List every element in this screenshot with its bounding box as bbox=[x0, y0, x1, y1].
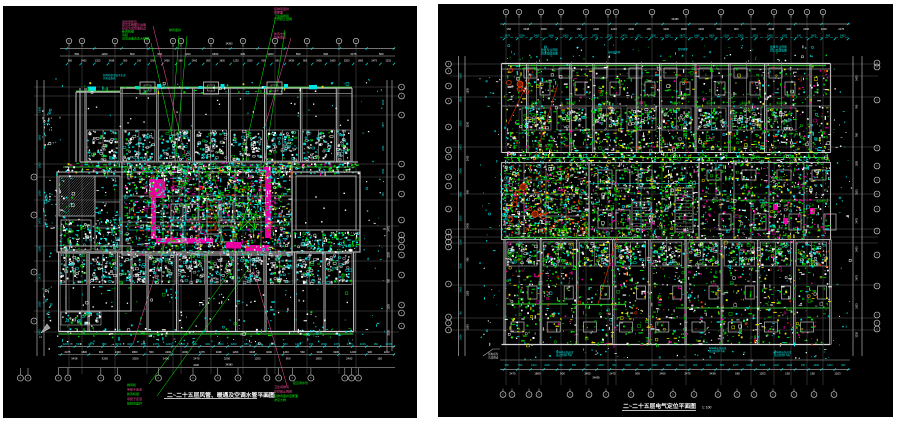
svg-text:900: 900 bbox=[286, 357, 291, 361]
svg-text:1: 100: 1: 100 bbox=[702, 406, 712, 410]
svg-text:560: 560 bbox=[296, 52, 301, 56]
svg-text:2400: 2400 bbox=[659, 372, 666, 376]
svg-text:2400: 2400 bbox=[459, 334, 463, 340]
svg-text:150: 150 bbox=[102, 342, 107, 346]
svg-text:2475: 2475 bbox=[193, 357, 200, 361]
svg-text:560: 560 bbox=[572, 364, 577, 367]
svg-text:3200: 3200 bbox=[665, 35, 671, 38]
svg-text:8: 8 bbox=[310, 376, 312, 380]
svg-text:560: 560 bbox=[283, 342, 288, 346]
svg-text:8: 8 bbox=[772, 393, 774, 397]
svg-text:3200: 3200 bbox=[459, 262, 463, 268]
svg-text:8: 8 bbox=[720, 10, 722, 14]
svg-text:1203: 1203 bbox=[350, 350, 356, 354]
svg-text:900: 900 bbox=[205, 342, 210, 346]
svg-text:3200: 3200 bbox=[459, 72, 463, 78]
svg-text:8: 8 bbox=[630, 393, 632, 397]
svg-text:1203: 1203 bbox=[827, 364, 833, 367]
svg-text:8: 8 bbox=[448, 63, 450, 66]
svg-text:2475: 2475 bbox=[592, 35, 598, 38]
svg-text:1203: 1203 bbox=[759, 372, 766, 376]
svg-text:1203: 1203 bbox=[834, 372, 841, 376]
svg-text:8: 8 bbox=[338, 39, 340, 43]
svg-text:3438: 3438 bbox=[216, 350, 222, 354]
svg-text:8: 8 bbox=[448, 185, 450, 188]
svg-text:1800: 1800 bbox=[767, 35, 773, 38]
svg-text:1203: 1203 bbox=[95, 60, 101, 63]
svg-text:8: 8 bbox=[237, 376, 239, 380]
svg-text:8: 8 bbox=[33, 176, 35, 179]
svg-text:560: 560 bbox=[735, 372, 740, 376]
svg-text:8: 8 bbox=[790, 10, 792, 14]
svg-text:1800: 1800 bbox=[81, 350, 87, 354]
svg-text:8: 8 bbox=[448, 149, 450, 152]
svg-text:150: 150 bbox=[373, 342, 378, 346]
svg-text:8: 8 bbox=[876, 314, 878, 317]
svg-text:1800: 1800 bbox=[681, 27, 687, 31]
svg-text:150: 150 bbox=[810, 372, 815, 376]
svg-text:2475: 2475 bbox=[199, 350, 205, 354]
svg-text:3438: 3438 bbox=[523, 27, 529, 31]
svg-text:3200: 3200 bbox=[650, 35, 656, 38]
svg-text:900: 900 bbox=[115, 342, 120, 346]
svg-text:8: 8 bbox=[448, 236, 450, 239]
svg-text:8: 8 bbox=[358, 376, 360, 380]
svg-text:2400: 2400 bbox=[81, 60, 87, 63]
svg-text:3200: 3200 bbox=[102, 357, 109, 361]
svg-text:3438: 3438 bbox=[760, 364, 766, 367]
svg-text:8: 8 bbox=[117, 376, 119, 380]
svg-text:900: 900 bbox=[787, 27, 792, 31]
svg-text:3200: 3200 bbox=[344, 60, 350, 63]
svg-text:接排风竖井: 接排风竖井 bbox=[127, 400, 142, 405]
svg-text:8: 8 bbox=[33, 214, 35, 217]
svg-text:8: 8 bbox=[806, 10, 808, 14]
svg-text:客房B型: 客房B型 bbox=[781, 199, 791, 203]
svg-text:1800: 1800 bbox=[598, 364, 604, 367]
svg-text:3200: 3200 bbox=[224, 357, 231, 361]
svg-text:2475: 2475 bbox=[733, 364, 739, 367]
svg-text:560: 560 bbox=[612, 364, 617, 367]
svg-text:1500: 1500 bbox=[382, 145, 385, 151]
svg-text:详见设备表及大样图: 详见设备表及大样图 bbox=[122, 35, 149, 40]
svg-text:560: 560 bbox=[379, 52, 384, 56]
svg-text:底边距地1.5米: 底边距地1.5米 bbox=[709, 349, 725, 353]
svg-text:1203: 1203 bbox=[611, 27, 617, 31]
svg-text:3438: 3438 bbox=[71, 357, 78, 361]
svg-text:8: 8 bbox=[569, 393, 571, 397]
svg-text:8: 8 bbox=[306, 39, 308, 43]
svg-text:1800: 1800 bbox=[132, 350, 138, 354]
svg-text:8: 8 bbox=[560, 10, 562, 14]
svg-text:吊装于走道: 吊装于走道 bbox=[127, 396, 142, 401]
svg-text:900: 900 bbox=[734, 27, 739, 31]
svg-text:8: 8 bbox=[27, 376, 29, 380]
svg-text:560: 560 bbox=[717, 27, 722, 31]
svg-text:560: 560 bbox=[74, 52, 79, 56]
svg-text:1800: 1800 bbox=[548, 35, 554, 38]
svg-text:8: 8 bbox=[822, 10, 824, 14]
svg-text:3200: 3200 bbox=[663, 27, 669, 31]
svg-text:8: 8 bbox=[401, 234, 403, 237]
svg-text:8: 8 bbox=[672, 393, 674, 397]
svg-text:3200: 3200 bbox=[182, 350, 188, 354]
svg-text:8: 8 bbox=[448, 176, 450, 179]
svg-text:8: 8 bbox=[607, 10, 609, 14]
svg-text:8: 8 bbox=[518, 10, 520, 14]
svg-text:2475: 2475 bbox=[684, 372, 691, 376]
svg-text:客房B型: 客房B型 bbox=[746, 199, 756, 203]
svg-text:1800: 1800 bbox=[467, 324, 470, 330]
svg-text:3200: 3200 bbox=[247, 60, 253, 63]
svg-text:1203: 1203 bbox=[101, 52, 108, 56]
svg-text:2475: 2475 bbox=[350, 52, 357, 56]
svg-text:3438: 3438 bbox=[109, 60, 115, 63]
svg-text:560: 560 bbox=[693, 364, 698, 367]
svg-text:8: 8 bbox=[813, 393, 815, 397]
svg-text:8: 8 bbox=[736, 393, 738, 397]
svg-text:客房A型: 客房A型 bbox=[566, 101, 576, 105]
svg-text:2400: 2400 bbox=[346, 357, 353, 361]
svg-text:560: 560 bbox=[275, 60, 280, 63]
svg-text:560: 560 bbox=[559, 364, 564, 367]
svg-text:8: 8 bbox=[20, 376, 22, 380]
svg-text:150: 150 bbox=[309, 342, 314, 346]
svg-text:8: 8 bbox=[750, 10, 752, 14]
svg-text:8: 8 bbox=[401, 304, 403, 307]
svg-text:1500: 1500 bbox=[388, 304, 391, 310]
svg-text:1203: 1203 bbox=[773, 364, 779, 367]
svg-text:3200: 3200 bbox=[467, 121, 470, 127]
svg-text:接排风竖井至屋面: 接排风竖井至屋面 bbox=[274, 393, 298, 398]
svg-text:1800: 1800 bbox=[811, 35, 817, 38]
svg-text:2400: 2400 bbox=[467, 155, 470, 161]
svg-text:8: 8 bbox=[278, 376, 280, 380]
svg-text:560: 560 bbox=[68, 60, 73, 63]
svg-text:1800: 1800 bbox=[459, 96, 463, 102]
svg-text:卫生间排风: 卫生间排风 bbox=[274, 384, 289, 389]
svg-text:900: 900 bbox=[560, 372, 565, 376]
svg-text:150: 150 bbox=[577, 27, 582, 31]
svg-text:客房B型: 客房B型 bbox=[816, 199, 826, 203]
svg-text:560: 560 bbox=[149, 350, 154, 354]
svg-text:1203: 1203 bbox=[723, 35, 729, 38]
svg-text:760: 760 bbox=[856, 133, 859, 138]
svg-text:8: 8 bbox=[876, 322, 878, 325]
svg-text:8: 8 bbox=[876, 328, 878, 331]
svg-text:8: 8 bbox=[693, 393, 695, 397]
svg-text:560: 560 bbox=[179, 60, 184, 63]
svg-text:150: 150 bbox=[377, 357, 382, 361]
svg-text:8: 8 bbox=[585, 10, 587, 14]
svg-text:1500: 1500 bbox=[459, 239, 463, 245]
svg-text:8: 8 bbox=[448, 241, 450, 244]
svg-text:8: 8 bbox=[685, 10, 687, 14]
svg-text:1#: 1# bbox=[39, 335, 42, 339]
svg-text:560: 560 bbox=[130, 52, 135, 56]
svg-text:客房A型: 客房A型 bbox=[741, 101, 751, 105]
svg-text:8: 8 bbox=[876, 66, 878, 69]
svg-text:8: 8 bbox=[876, 254, 878, 257]
svg-text:3200: 3200 bbox=[519, 35, 525, 38]
svg-text:8: 8 bbox=[876, 230, 878, 233]
svg-text:1203: 1203 bbox=[254, 357, 261, 361]
svg-text:1203: 1203 bbox=[385, 60, 391, 63]
svg-text:8: 8 bbox=[58, 376, 60, 380]
svg-text:36438: 36438 bbox=[592, 376, 600, 380]
svg-text:8: 8 bbox=[401, 239, 403, 242]
svg-text:3438: 3438 bbox=[164, 60, 170, 63]
svg-text:8: 8 bbox=[344, 376, 346, 380]
svg-text:2475: 2475 bbox=[65, 350, 71, 354]
svg-text:8: 8 bbox=[401, 163, 403, 166]
svg-text:二~二十五层电气定位平面图: 二~二十五层电气定位平面图 bbox=[623, 402, 696, 410]
svg-text:1800: 1800 bbox=[534, 372, 541, 376]
svg-text:3438: 3438 bbox=[768, 27, 774, 31]
svg-text:洞口见建筑图: 洞口见建筑图 bbox=[770, 49, 787, 53]
svg-text:2400: 2400 bbox=[584, 372, 591, 376]
svg-text:8: 8 bbox=[511, 393, 513, 397]
svg-text:1203: 1203 bbox=[384, 350, 390, 354]
svg-text:8: 8 bbox=[793, 393, 795, 397]
svg-text:760: 760 bbox=[382, 123, 385, 128]
svg-text:8: 8 bbox=[172, 39, 174, 43]
svg-text:2475: 2475 bbox=[505, 35, 511, 38]
svg-text:8: 8 bbox=[876, 165, 878, 168]
svg-text:2475: 2475 bbox=[856, 274, 859, 280]
svg-text:3200: 3200 bbox=[63, 342, 69, 346]
svg-text:8: 8 bbox=[192, 376, 194, 380]
svg-text:8: 8 bbox=[448, 322, 450, 325]
svg-text:支管装止回阀: 支管装止回阀 bbox=[274, 388, 292, 393]
svg-text:1500: 1500 bbox=[459, 120, 463, 126]
svg-text:8: 8 bbox=[448, 70, 450, 73]
svg-text:560: 560 bbox=[518, 364, 523, 367]
svg-text:8: 8 bbox=[717, 393, 719, 397]
svg-text:8: 8 bbox=[448, 100, 450, 103]
svg-text:8: 8 bbox=[540, 10, 542, 14]
svg-text:8: 8 bbox=[401, 312, 403, 315]
svg-text:8: 8 bbox=[114, 39, 116, 43]
svg-text:3438: 3438 bbox=[317, 350, 323, 354]
svg-text:150: 150 bbox=[507, 27, 512, 31]
svg-text:8: 8 bbox=[401, 246, 403, 249]
svg-text:1800: 1800 bbox=[856, 303, 859, 309]
svg-text:1500: 1500 bbox=[856, 160, 859, 166]
svg-text:2475: 2475 bbox=[680, 35, 686, 38]
svg-text:900: 900 bbox=[752, 27, 757, 31]
svg-text:900: 900 bbox=[303, 60, 308, 63]
svg-text:8: 8 bbox=[876, 99, 878, 102]
svg-text:150: 150 bbox=[585, 364, 590, 367]
svg-text:2400: 2400 bbox=[459, 167, 463, 173]
svg-text:客房A型: 客房A型 bbox=[671, 101, 681, 105]
svg-text:2400: 2400 bbox=[544, 364, 550, 367]
svg-text:8: 8 bbox=[773, 10, 775, 14]
svg-text:150: 150 bbox=[636, 35, 641, 38]
svg-text:2400: 2400 bbox=[115, 350, 121, 354]
svg-text:2400: 2400 bbox=[593, 27, 599, 31]
svg-text:150: 150 bbox=[647, 27, 652, 31]
svg-text:1500: 1500 bbox=[38, 162, 42, 168]
svg-text:900: 900 bbox=[578, 35, 583, 38]
svg-text:8: 8 bbox=[753, 393, 755, 397]
svg-text:560: 560 bbox=[720, 364, 725, 367]
svg-text:900: 900 bbox=[141, 342, 146, 346]
svg-text:150: 150 bbox=[785, 372, 790, 376]
svg-text:3438: 3438 bbox=[625, 364, 631, 367]
svg-text:1800: 1800 bbox=[38, 106, 42, 112]
svg-text:2400: 2400 bbox=[628, 27, 634, 31]
svg-text:900: 900 bbox=[635, 372, 640, 376]
svg-text:8: 8 bbox=[448, 231, 450, 234]
svg-text:2475: 2475 bbox=[621, 35, 627, 38]
svg-text:1500: 1500 bbox=[382, 168, 385, 174]
svg-text:760: 760 bbox=[459, 311, 463, 316]
svg-text:8: 8 bbox=[274, 39, 276, 43]
svg-text:3200: 3200 bbox=[127, 342, 133, 346]
svg-text:8: 8 bbox=[68, 39, 70, 43]
svg-text:1500: 1500 bbox=[38, 245, 42, 251]
svg-text:8: 8 bbox=[876, 147, 878, 150]
svg-text:1800: 1800 bbox=[541, 27, 547, 31]
svg-text:二~二十五层风管、暖通及空调水管平面图: 二~二十五层风管、暖通及空调水管平面图 bbox=[167, 391, 275, 399]
svg-text:2400: 2400 bbox=[814, 364, 820, 367]
svg-text:8: 8 bbox=[588, 393, 590, 397]
svg-text:1800: 1800 bbox=[652, 364, 658, 367]
svg-text:8: 8 bbox=[401, 274, 403, 277]
svg-text:8: 8 bbox=[528, 393, 530, 397]
svg-text:8: 8 bbox=[180, 39, 182, 43]
svg-text:8: 8 bbox=[355, 39, 357, 43]
svg-text:2400: 2400 bbox=[459, 286, 463, 292]
svg-text:1203: 1203 bbox=[283, 350, 289, 354]
svg-text:900: 900 bbox=[123, 60, 128, 63]
svg-text:8: 8 bbox=[448, 283, 450, 286]
svg-text:900: 900 bbox=[99, 350, 104, 354]
svg-text:8: 8 bbox=[351, 376, 353, 380]
svg-text:3200: 3200 bbox=[382, 99, 385, 105]
svg-text:3200: 3200 bbox=[679, 364, 685, 367]
svg-text:8: 8 bbox=[401, 254, 403, 257]
svg-text:2400: 2400 bbox=[192, 60, 198, 63]
svg-text:900: 900 bbox=[368, 350, 373, 354]
svg-text:1:100: 1:100 bbox=[261, 394, 269, 398]
svg-text:2475: 2475 bbox=[38, 273, 42, 279]
svg-text:1203: 1203 bbox=[267, 52, 274, 56]
svg-text:1203: 1203 bbox=[166, 342, 172, 346]
svg-text:3200: 3200 bbox=[360, 342, 366, 346]
svg-text:8: 8 bbox=[505, 10, 507, 14]
svg-text:900: 900 bbox=[323, 52, 328, 56]
svg-text:2475: 2475 bbox=[388, 226, 391, 232]
svg-text:1800: 1800 bbox=[330, 60, 336, 63]
svg-text:1800: 1800 bbox=[694, 35, 700, 38]
svg-text:34380: 34380 bbox=[671, 17, 679, 21]
svg-text:1203: 1203 bbox=[706, 364, 712, 367]
svg-text:8: 8 bbox=[81, 39, 83, 43]
svg-text:详见设备表: 详见设备表 bbox=[103, 76, 116, 80]
svg-text:1800: 1800 bbox=[179, 342, 185, 346]
svg-text:详见大样: 详见大样 bbox=[274, 397, 286, 402]
svg-text:1203: 1203 bbox=[782, 35, 788, 38]
svg-text:8: 8 bbox=[605, 393, 607, 397]
svg-text:3438: 3438 bbox=[386, 342, 392, 346]
svg-text:1800: 1800 bbox=[467, 290, 470, 296]
svg-text:接线盒预埋: 接线盒预埋 bbox=[608, 50, 621, 54]
svg-text:8: 8 bbox=[401, 95, 403, 98]
svg-text:900: 900 bbox=[244, 342, 249, 346]
svg-text:8: 8 bbox=[448, 246, 450, 249]
svg-text:弱电桥架: 弱电桥架 bbox=[488, 352, 499, 356]
svg-text:2400: 2400 bbox=[467, 223, 470, 229]
svg-text:8: 8 bbox=[833, 393, 835, 397]
svg-text:1203: 1203 bbox=[233, 60, 239, 63]
svg-text:8: 8 bbox=[876, 179, 878, 182]
svg-text:3200: 3200 bbox=[856, 189, 859, 195]
svg-text:2475: 2475 bbox=[371, 60, 377, 63]
svg-text:1800: 1800 bbox=[219, 60, 225, 63]
svg-text:8: 8 bbox=[502, 393, 504, 397]
svg-text:1800: 1800 bbox=[666, 364, 672, 367]
svg-text:8: 8 bbox=[448, 85, 450, 88]
svg-text:2400: 2400 bbox=[163, 357, 170, 361]
svg-text:8: 8 bbox=[538, 393, 540, 397]
svg-text:150: 150 bbox=[137, 60, 142, 63]
svg-text:8: 8 bbox=[448, 329, 450, 332]
svg-text:2475: 2475 bbox=[856, 217, 859, 223]
svg-text:1800: 1800 bbox=[563, 35, 569, 38]
svg-text:2475: 2475 bbox=[838, 27, 844, 31]
svg-text:8: 8 bbox=[158, 376, 160, 380]
svg-text:3200: 3200 bbox=[738, 35, 744, 38]
svg-text:8: 8 bbox=[401, 219, 403, 222]
svg-text:1203: 1203 bbox=[607, 35, 613, 38]
svg-text:150: 150 bbox=[797, 35, 802, 38]
svg-text:760: 760 bbox=[467, 257, 470, 262]
svg-text:2475: 2475 bbox=[38, 329, 42, 335]
svg-text:8: 8 bbox=[651, 10, 653, 14]
svg-text:套管预埋: 套管预埋 bbox=[678, 47, 688, 51]
svg-text:3200: 3200 bbox=[132, 357, 139, 361]
svg-text:3438: 3438 bbox=[249, 350, 255, 354]
svg-text:1800: 1800 bbox=[459, 191, 463, 197]
svg-text:760: 760 bbox=[467, 189, 470, 194]
svg-text:1500: 1500 bbox=[459, 215, 463, 221]
svg-text:760: 760 bbox=[856, 104, 859, 109]
svg-text:760: 760 bbox=[382, 192, 385, 197]
svg-text:1500: 1500 bbox=[38, 190, 42, 196]
svg-text:1800: 1800 bbox=[467, 88, 470, 94]
svg-text:8: 8 bbox=[876, 208, 878, 211]
svg-text:3438: 3438 bbox=[316, 60, 322, 63]
svg-text:8: 8 bbox=[876, 193, 878, 196]
svg-text:3200: 3200 bbox=[388, 330, 391, 336]
svg-text:1800: 1800 bbox=[321, 342, 327, 346]
svg-text:2400: 2400 bbox=[534, 35, 540, 38]
svg-text:2475: 2475 bbox=[153, 342, 159, 346]
svg-text:150: 150 bbox=[639, 364, 644, 367]
svg-text:8: 8 bbox=[650, 393, 652, 397]
svg-text:3200: 3200 bbox=[231, 342, 237, 346]
svg-text:1203: 1203 bbox=[746, 364, 752, 367]
svg-text:1203: 1203 bbox=[531, 364, 537, 367]
svg-text:560: 560 bbox=[206, 60, 211, 63]
svg-text:560: 560 bbox=[826, 35, 831, 38]
svg-text:900: 900 bbox=[841, 364, 846, 367]
svg-text:3438: 3438 bbox=[709, 372, 716, 376]
svg-text:900: 900 bbox=[505, 364, 510, 367]
